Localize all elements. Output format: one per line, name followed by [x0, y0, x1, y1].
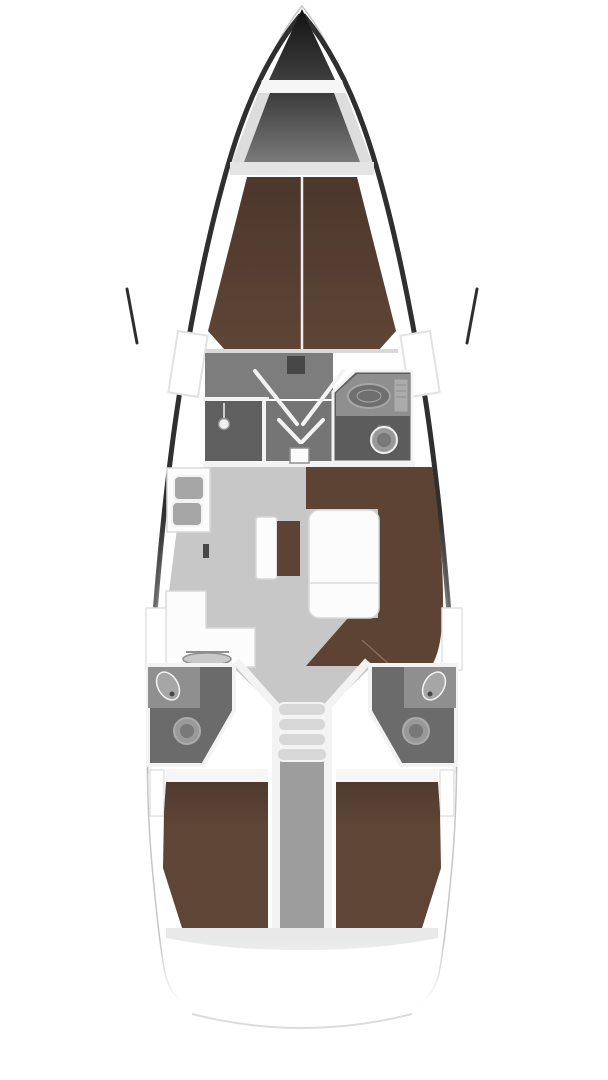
companionway-step-2	[278, 718, 326, 731]
companionway-step-4	[277, 748, 327, 761]
salon-table	[309, 510, 379, 618]
aft-head-port-drain	[170, 692, 175, 697]
galley-handle	[203, 544, 209, 558]
berth-foot-wall	[206, 349, 398, 353]
settee-aft-arm	[348, 618, 431, 666]
forward-cabin-floor	[205, 353, 333, 399]
shower-wall-vertical	[262, 399, 266, 462]
forward-head-sink	[348, 384, 390, 408]
chainplate-port	[127, 289, 137, 343]
floor-plan-canvas	[0, 0, 608, 1080]
aft-berth-port	[163, 782, 268, 928]
aft-head-starboard-drain	[428, 692, 433, 697]
aft-berth-headboard-starboard	[336, 769, 438, 782]
foredeck-beam	[230, 162, 374, 175]
forward-shower-floor	[205, 401, 264, 462]
center-bench	[256, 517, 300, 579]
yacht-floor-plan	[0, 0, 608, 1080]
salon-hatch-starboard	[442, 608, 462, 670]
aft-berth-headboard-port	[166, 769, 268, 782]
stern-fade	[110, 940, 498, 1080]
center-bench-white	[256, 517, 277, 579]
anchor-locker-platform	[258, 80, 346, 93]
forward-cabinet	[287, 356, 305, 374]
galley-sink-1	[174, 476, 204, 500]
companionway-step-3	[278, 733, 326, 746]
companionway-step-1	[278, 703, 326, 716]
aft-head-port-toilet-bowl	[180, 724, 194, 738]
aft-berth-starboard	[336, 782, 441, 928]
aft-cabin-window-port	[150, 770, 164, 816]
galley-sink-2	[172, 502, 202, 526]
salon-hatch-port	[146, 608, 166, 670]
aft-cabin-window-starboard	[440, 770, 454, 816]
forward-head	[333, 371, 412, 462]
chainplate-starboard	[467, 289, 477, 343]
forward-head-panel	[394, 379, 408, 412]
center-bench-cushion	[277, 521, 300, 576]
shower-wall-horizontal	[203, 397, 269, 401]
forward-cabin-door	[290, 448, 309, 463]
forward-toilet-bowl	[377, 433, 391, 447]
shower-head-icon	[219, 419, 230, 430]
aft-head-starboard-toilet-bowl	[409, 724, 423, 738]
engine-compartment	[276, 760, 328, 928]
